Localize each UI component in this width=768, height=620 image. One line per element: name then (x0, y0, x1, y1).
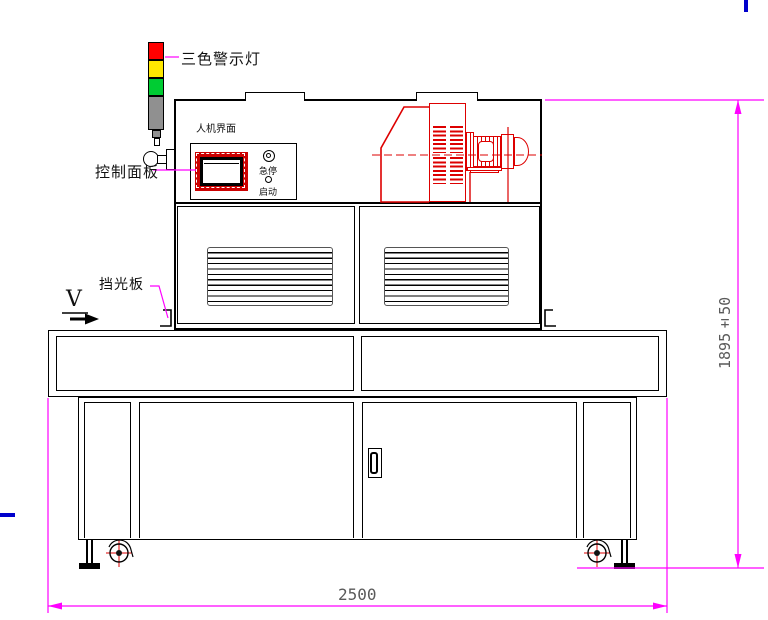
height-dimension-text: 1895±50 (716, 288, 734, 378)
caster-right (584, 540, 611, 567)
warning-light-label: 三色警示灯 (181, 48, 261, 69)
light-shield-left (160, 310, 171, 326)
drawing-canvas: 三色警示灯 控制面板 人机界面 急停 启动 挡光板 V 2500 1895±50 (0, 0, 768, 620)
direction-label: V (66, 287, 82, 312)
dimension-width (48, 398, 667, 613)
width-dimension-text: 2500 (338, 585, 377, 604)
estop-label: 急停 (259, 164, 277, 177)
hmi-label: 人机界面 (196, 120, 236, 135)
control-panel-label: 控制面板 (95, 161, 159, 182)
light-shield-right (545, 310, 556, 326)
direction-arrow (62, 313, 99, 325)
leader-light-shield (150, 286, 168, 318)
linework-overlay (0, 0, 768, 620)
caster-left (106, 540, 133, 567)
light-shield-label: 挡光板 (99, 274, 144, 294)
start-label: 启动 (259, 185, 277, 198)
